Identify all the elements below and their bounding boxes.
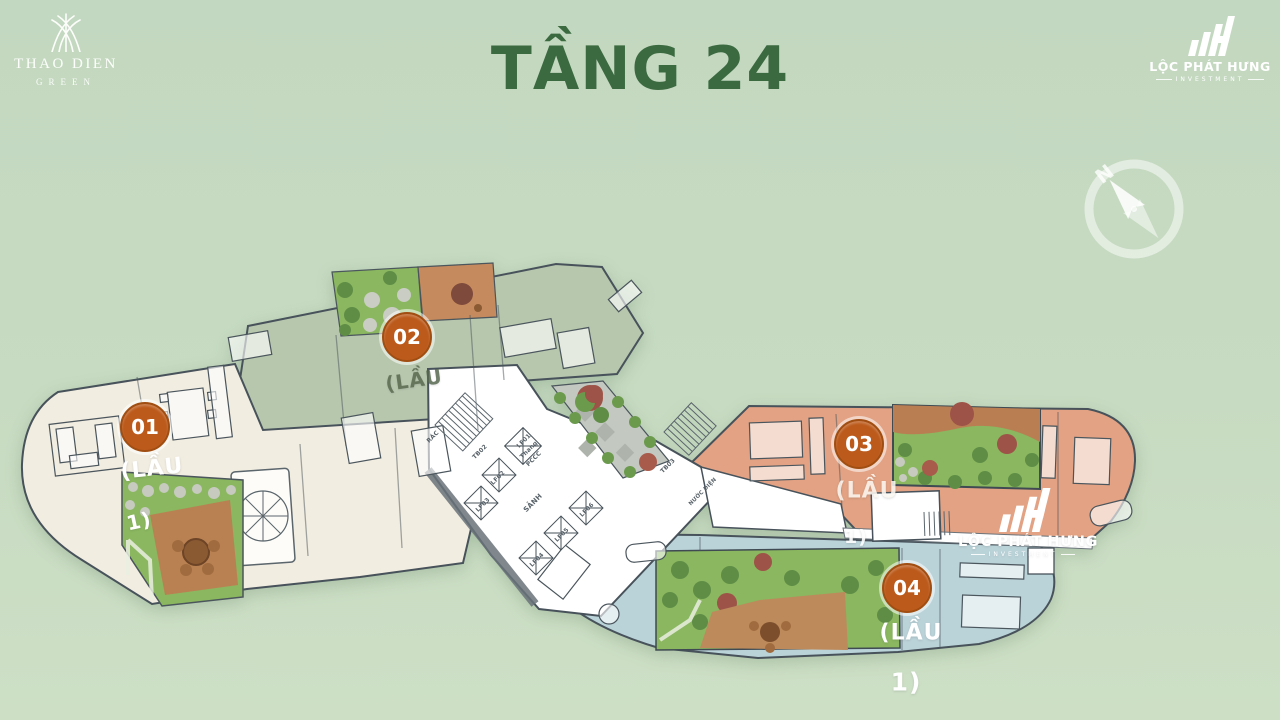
floor-plan-page: THAO DIEN GREEN TẦNG 24 LỘC PHÁT HƯNG IN… bbox=[0, 0, 1280, 720]
divider-line bbox=[1248, 79, 1264, 80]
bars-monogram-icon bbox=[1184, 16, 1236, 56]
divider-line bbox=[1061, 554, 1075, 555]
unit-01-label-2: 1) bbox=[124, 507, 154, 536]
watermark-logo: LỘC PHÁT HƯNG INVESTMENT bbox=[958, 488, 1088, 558]
thao-dien-logo: THAO DIEN GREEN bbox=[8, 12, 124, 87]
logo-name: LỘC PHÁT HƯNG bbox=[1148, 59, 1272, 74]
grass-icon bbox=[42, 12, 90, 52]
unit-03-badge: 03 bbox=[834, 419, 884, 469]
unit-03-label: (LẦU bbox=[836, 479, 899, 504]
garden-unit04 bbox=[656, 548, 900, 653]
watermark-subtitle: INVESTMENT bbox=[989, 551, 1058, 558]
unit-04-badge: 04 bbox=[882, 563, 932, 613]
divider-line bbox=[971, 554, 985, 555]
garden-unit03 bbox=[893, 402, 1040, 489]
page-title: TẦNG 24 bbox=[491, 34, 789, 104]
brand-name: THAO DIEN bbox=[8, 56, 124, 73]
unit-04-label: (LẦU bbox=[880, 621, 943, 646]
loc-phat-hung-logo: LỘC PHÁT HƯNG INVESTMENT bbox=[1148, 16, 1272, 83]
watermark-name: LỘC PHÁT HƯNG bbox=[958, 534, 1088, 550]
unit-04-label-2: 1) bbox=[891, 668, 922, 697]
brand-subtitle: GREEN bbox=[8, 77, 124, 87]
bars-monogram-icon bbox=[994, 488, 1052, 532]
divider-line bbox=[1156, 79, 1172, 80]
logo-subtitle: INVESTMENT bbox=[1176, 76, 1245, 83]
unit-01-badge: 01 bbox=[120, 402, 170, 452]
unit-03-label-2: 1) bbox=[844, 526, 868, 548]
unit-02-badge: 02 bbox=[382, 312, 432, 362]
floor-plan bbox=[0, 0, 1280, 720]
